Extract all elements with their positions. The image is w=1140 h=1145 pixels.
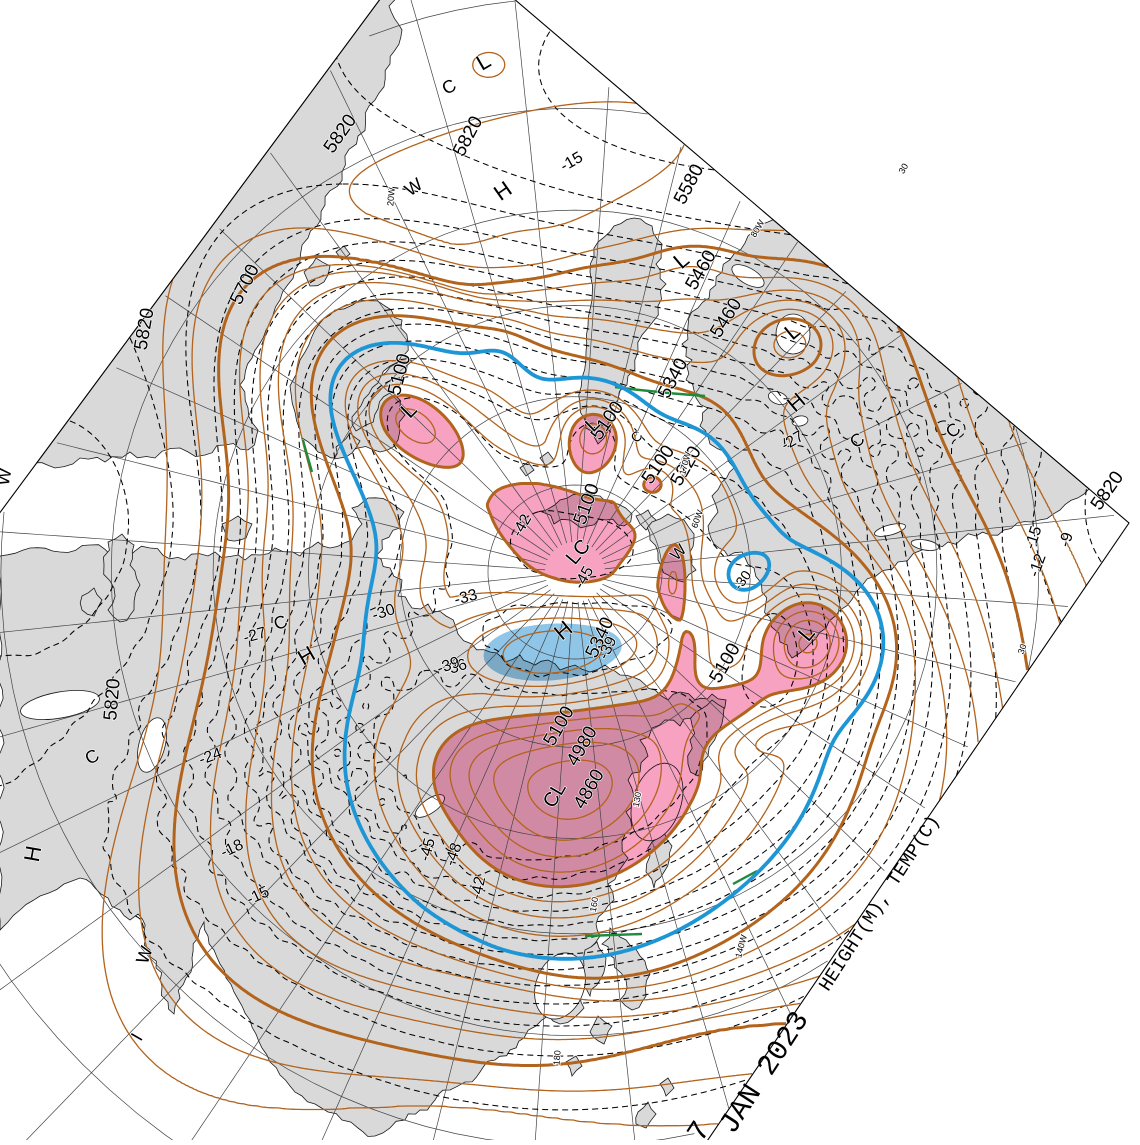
svg-text:5820: 5820 <box>100 678 125 722</box>
svg-text:20W: 20W <box>385 187 397 207</box>
svg-text:180: 180 <box>551 1050 562 1066</box>
